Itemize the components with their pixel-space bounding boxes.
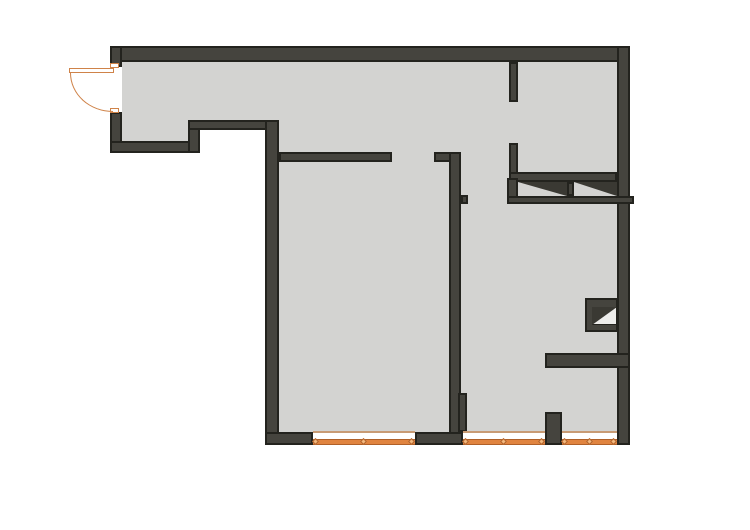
hallway-south-wall-left xyxy=(110,141,200,153)
main-floor xyxy=(279,62,617,432)
window-left-frame-line xyxy=(313,431,415,433)
shaft-band-divider xyxy=(567,182,574,196)
exterior-wall-west xyxy=(265,120,279,445)
rightroom-partition-wall xyxy=(545,353,630,368)
bottom-wall-left-segment xyxy=(265,432,313,445)
window-middle xyxy=(463,431,545,445)
wc-west-wall-upper xyxy=(509,62,518,102)
center-wall-pilaster xyxy=(458,393,467,432)
entry-door-swing-arc xyxy=(70,73,113,112)
window-left xyxy=(313,431,415,445)
hallway-floor-mid xyxy=(188,62,279,120)
exterior-wall-top xyxy=(110,46,630,62)
hallway-floor-left xyxy=(122,62,188,141)
window-right xyxy=(562,431,617,445)
shaft-band-top-wall xyxy=(509,172,617,182)
window-middle-frame-line xyxy=(463,431,545,433)
floor-plan xyxy=(0,0,750,530)
bottom-wall-mid-segment xyxy=(415,432,463,445)
shaft-band-bottom-wall xyxy=(507,196,634,204)
center-wall-bump xyxy=(461,195,468,204)
exterior-wall-right xyxy=(617,46,630,445)
window-pier xyxy=(545,412,562,445)
leftroom-north-wall xyxy=(279,152,392,162)
window-right-frame-line xyxy=(562,431,617,433)
